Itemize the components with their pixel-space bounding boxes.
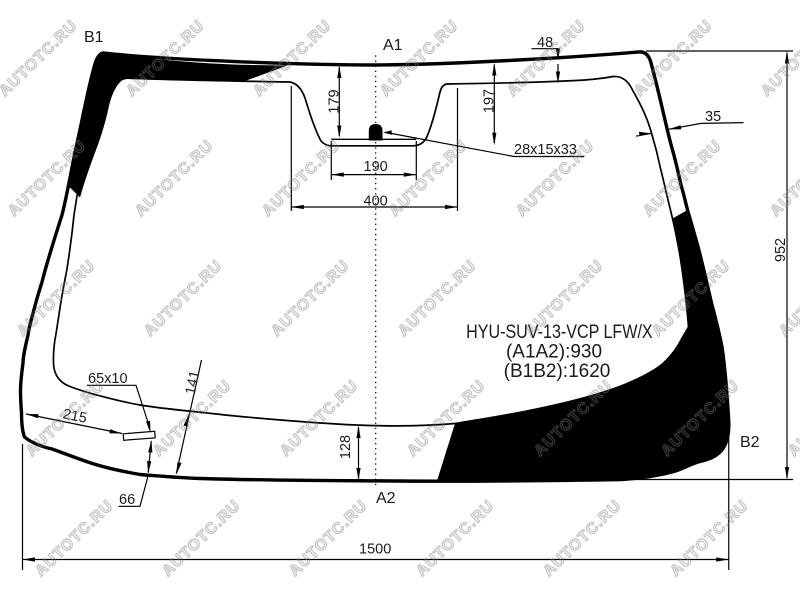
svg-text:179: 179: [327, 89, 343, 113]
svg-text:197: 197: [482, 89, 498, 113]
svg-text:952: 952: [773, 238, 789, 262]
svg-text:A1: A1: [383, 37, 403, 54]
svg-text:B1: B1: [84, 29, 104, 46]
svg-text:1500: 1500: [359, 542, 391, 558]
svg-text:190: 190: [364, 159, 388, 175]
svg-text:(A1A2):930: (A1A2):930: [506, 342, 602, 363]
svg-text:A2: A2: [376, 490, 396, 507]
svg-text:128: 128: [338, 435, 354, 459]
svg-text:HYU-SUV-13-VCP LFW/X: HYU-SUV-13-VCP LFW/X: [466, 322, 653, 343]
svg-text:B2: B2: [740, 434, 760, 451]
svg-text:400: 400: [364, 193, 388, 209]
svg-text:66: 66: [119, 492, 135, 508]
svg-text:(B1B2):1620: (B1B2):1620: [504, 361, 611, 382]
